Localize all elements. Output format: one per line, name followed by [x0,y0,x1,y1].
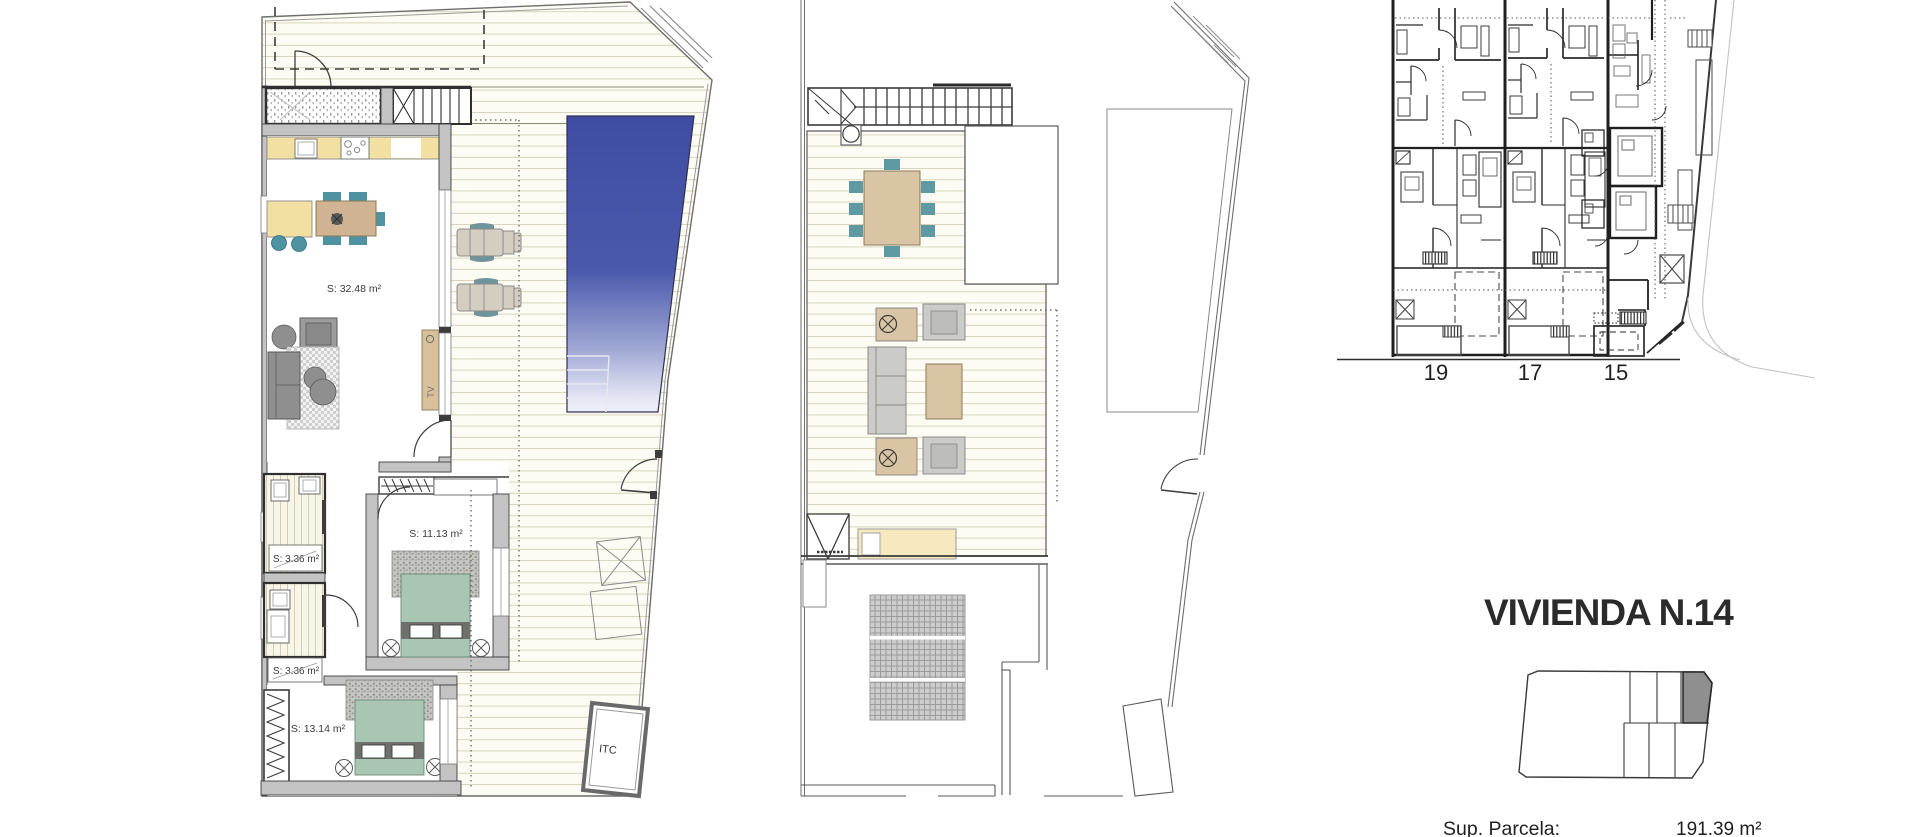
svg-text:S: 3.36 m²: S: 3.36 m² [273,554,320,565]
svg-text:15: 15 [1604,360,1628,385]
svg-text:TV: TV [426,386,436,398]
svg-text:S: 3.36 m²: S: 3.36 m² [273,666,320,677]
svg-text:ITC: ITC [598,743,617,757]
svg-text:S: 13.14 m²: S: 13.14 m² [291,723,346,735]
svg-text:17: 17 [1518,360,1542,385]
svg-text:S: 32.48 m²: S: 32.48 m² [327,283,382,295]
svg-text:191.39 m²: 191.39 m² [1676,819,1762,837]
svg-text:Sup. Parcela:: Sup. Parcela: [1443,818,1560,837]
svg-text:19: 19 [1424,360,1448,385]
svg-text:VIVIENDA N.14: VIVIENDA N.14 [1484,592,1734,633]
svg-text:S: 11.13 m²: S: 11.13 m² [409,528,463,540]
